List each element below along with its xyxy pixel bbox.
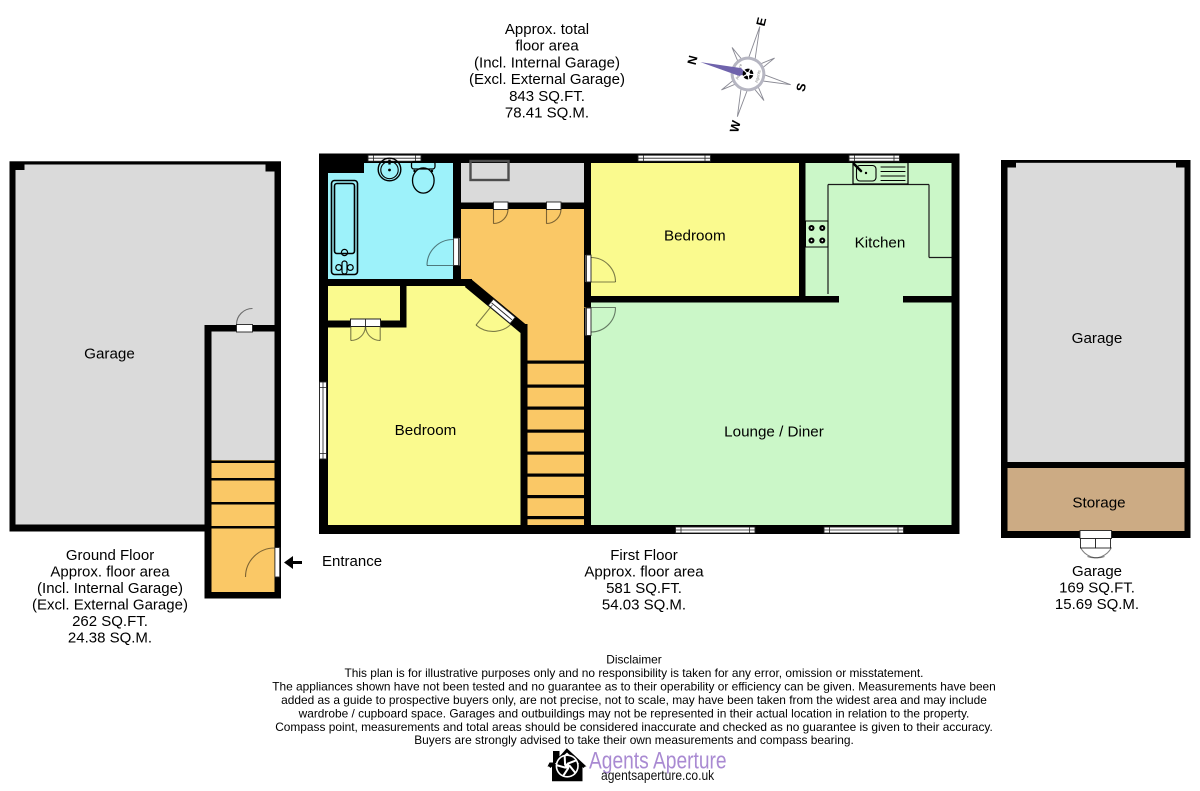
svg-text:(Incl. Internal Garage): (Incl. Internal Garage) xyxy=(474,54,620,71)
svg-text:First Floor: First Floor xyxy=(610,547,678,564)
svg-text:This plan is for illustrative: This plan is for illustrative purposes o… xyxy=(345,666,924,680)
svg-text:169 SQ.FT.: 169 SQ.FT. xyxy=(1059,580,1135,597)
svg-text:Approx. total: Approx. total xyxy=(505,21,589,38)
svg-text:Kitchen: Kitchen xyxy=(855,235,906,252)
svg-text:Approx. floor area: Approx. floor area xyxy=(50,564,170,581)
svg-text:Garage: Garage xyxy=(1072,330,1123,347)
svg-text:Garage: Garage xyxy=(84,346,135,363)
svg-text:The appliances shown have not: The appliances shown have not been teste… xyxy=(272,679,996,693)
svg-text:Garage: Garage xyxy=(1072,563,1122,580)
svg-text:(Excl. External Garage): (Excl. External Garage) xyxy=(469,71,625,88)
svg-text:floor area: floor area xyxy=(515,38,579,55)
svg-text:Bedroom: Bedroom xyxy=(664,228,726,245)
svg-text:(Excl. External Garage): (Excl. External Garage) xyxy=(32,597,188,614)
svg-text:15.69 SQ.M.: 15.69 SQ.M. xyxy=(1055,596,1139,613)
svg-text:added as a guide to prospectiv: added as a guide to prospective buyers o… xyxy=(281,693,987,707)
svg-text:Disclaimer: Disclaimer xyxy=(606,653,662,667)
svg-text:Entrance: Entrance xyxy=(322,553,382,570)
svg-text:78.41 SQ.M.: 78.41 SQ.M. xyxy=(505,105,589,122)
svg-text:262 SQ.FT.: 262 SQ.FT. xyxy=(72,613,148,630)
svg-text:Storage: Storage xyxy=(1072,495,1125,512)
svg-text:(Incl. Internal Garage): (Incl. Internal Garage) xyxy=(37,580,183,597)
svg-text:581 SQ.FT.: 581 SQ.FT. xyxy=(606,580,682,597)
svg-text:54.03 SQ.M.: 54.03 SQ.M. xyxy=(602,597,686,614)
svg-text:Lounge / Diner: Lounge / Diner xyxy=(724,424,824,441)
svg-text:Bedroom: Bedroom xyxy=(395,422,457,439)
svg-text:agentsaperture.co.uk: agentsaperture.co.uk xyxy=(601,767,715,783)
svg-text:843 SQ.FT.: 843 SQ.FT. xyxy=(509,88,585,105)
svg-text:Approx. floor area: Approx. floor area xyxy=(584,564,704,581)
svg-text:Ground Floor: Ground Floor xyxy=(66,547,154,564)
svg-text:wardrobe / cupboard space. Gar: wardrobe / cupboard space. Garages and o… xyxy=(298,706,970,720)
svg-text:Compass point, measurements an: Compass point, measurements and total ar… xyxy=(275,720,993,734)
svg-text:Buyers are strongly advised to: Buyers are strongly advised to take thei… xyxy=(414,733,854,747)
svg-text:24.38 SQ.M.: 24.38 SQ.M. xyxy=(68,630,152,647)
